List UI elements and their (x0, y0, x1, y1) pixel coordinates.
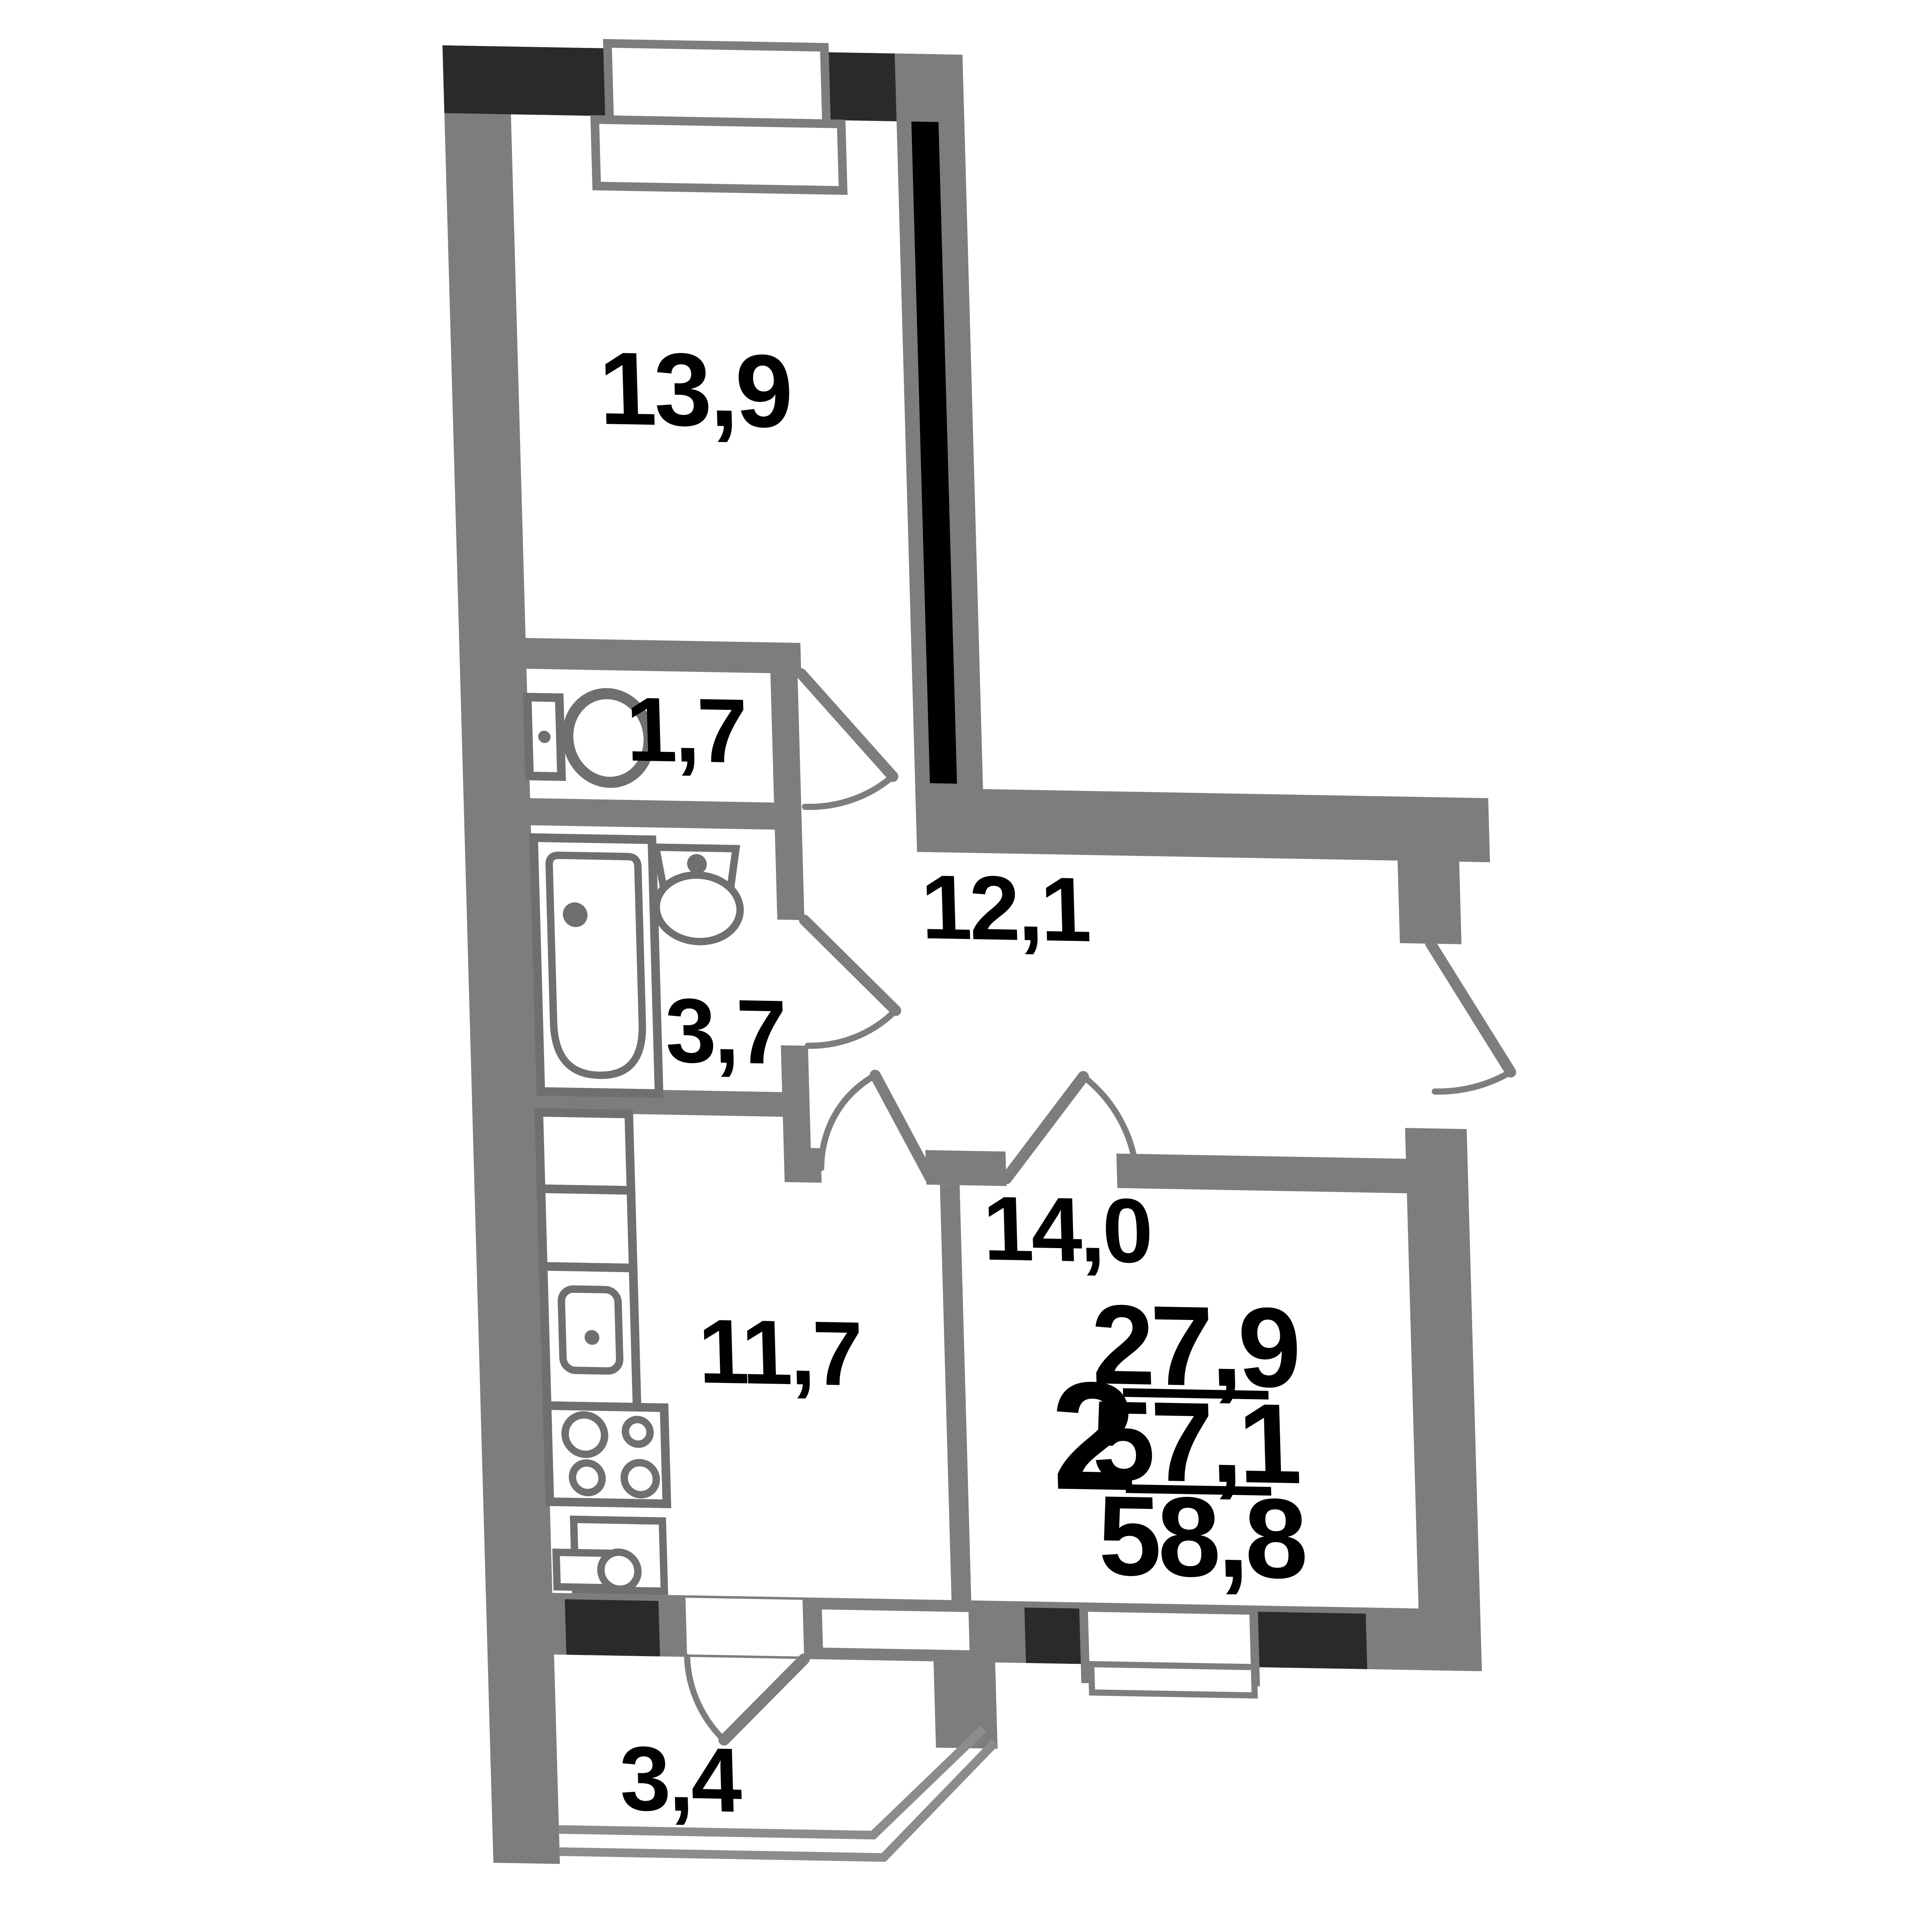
area-label-hallway: 12,1 (920, 856, 1090, 961)
livingroom-window-sill (1091, 1664, 1255, 1696)
kitchen-window (819, 1606, 973, 1653)
wc-right-wall-upper (770, 673, 804, 920)
exterior-wall-right (1405, 1128, 1482, 1671)
bedroom-door (801, 674, 894, 809)
entry-pier-wall (1398, 861, 1461, 944)
floor-plan: 13,9 1,7 3,7 12,1 14,0 11,7 3,4 2 27,9 5… (0, 0, 1932, 1932)
balcony-door-opening (685, 1598, 804, 1656)
plan-group: 13,9 1,7 3,7 12,1 14,0 11,7 3,4 2 27,9 5… (442, 41, 1533, 1882)
hall-wall-right-segment (1116, 1153, 1407, 1193)
area-label-kitchen: 11,7 (697, 1300, 862, 1405)
entry-door (1431, 944, 1511, 1093)
stove-icon (547, 1406, 667, 1504)
washbasin-icon (655, 847, 741, 942)
bathtub-icon (534, 838, 659, 1094)
floor-plan-canvas: 13,9 1,7 3,7 12,1 14,0 11,7 3,4 2 27,9 5… (0, 0, 1932, 1932)
washing-machine-icon (555, 1519, 665, 1591)
exterior-wall-top-accent-left (442, 45, 613, 116)
kitchen-livingroom-partition (940, 1185, 971, 1609)
summary-total-area: 58,8 (1096, 1472, 1306, 1603)
summary-block: 2 27,9 57,1 58,8 (1047, 1280, 1306, 1602)
hallway-top-wall (915, 788, 1490, 862)
bedroom-window-sill (595, 119, 843, 190)
balcony-right-pillar (934, 1661, 998, 1748)
area-label-bathroom: 3,7 (664, 980, 786, 1083)
bottom-wall-accent-right (1252, 1612, 1367, 1669)
kitchen-door (818, 1074, 930, 1177)
kitchen-counter (539, 1112, 637, 1407)
bedroom-bottom-wall (523, 638, 801, 674)
area-label-balcony: 3,4 (618, 1727, 742, 1832)
kitchen-cabinet-icon (539, 1112, 631, 1190)
bottom-wall-accent-left (565, 1599, 660, 1656)
area-label-bedroom: 13,9 (597, 330, 792, 449)
area-label-wc: 1,7 (625, 678, 747, 782)
wc-bathroom-divider-wall (527, 798, 775, 830)
bathroom-door (804, 920, 897, 1047)
area-label-living-room: 14,0 (981, 1177, 1152, 1282)
bedroom-window (607, 43, 827, 124)
